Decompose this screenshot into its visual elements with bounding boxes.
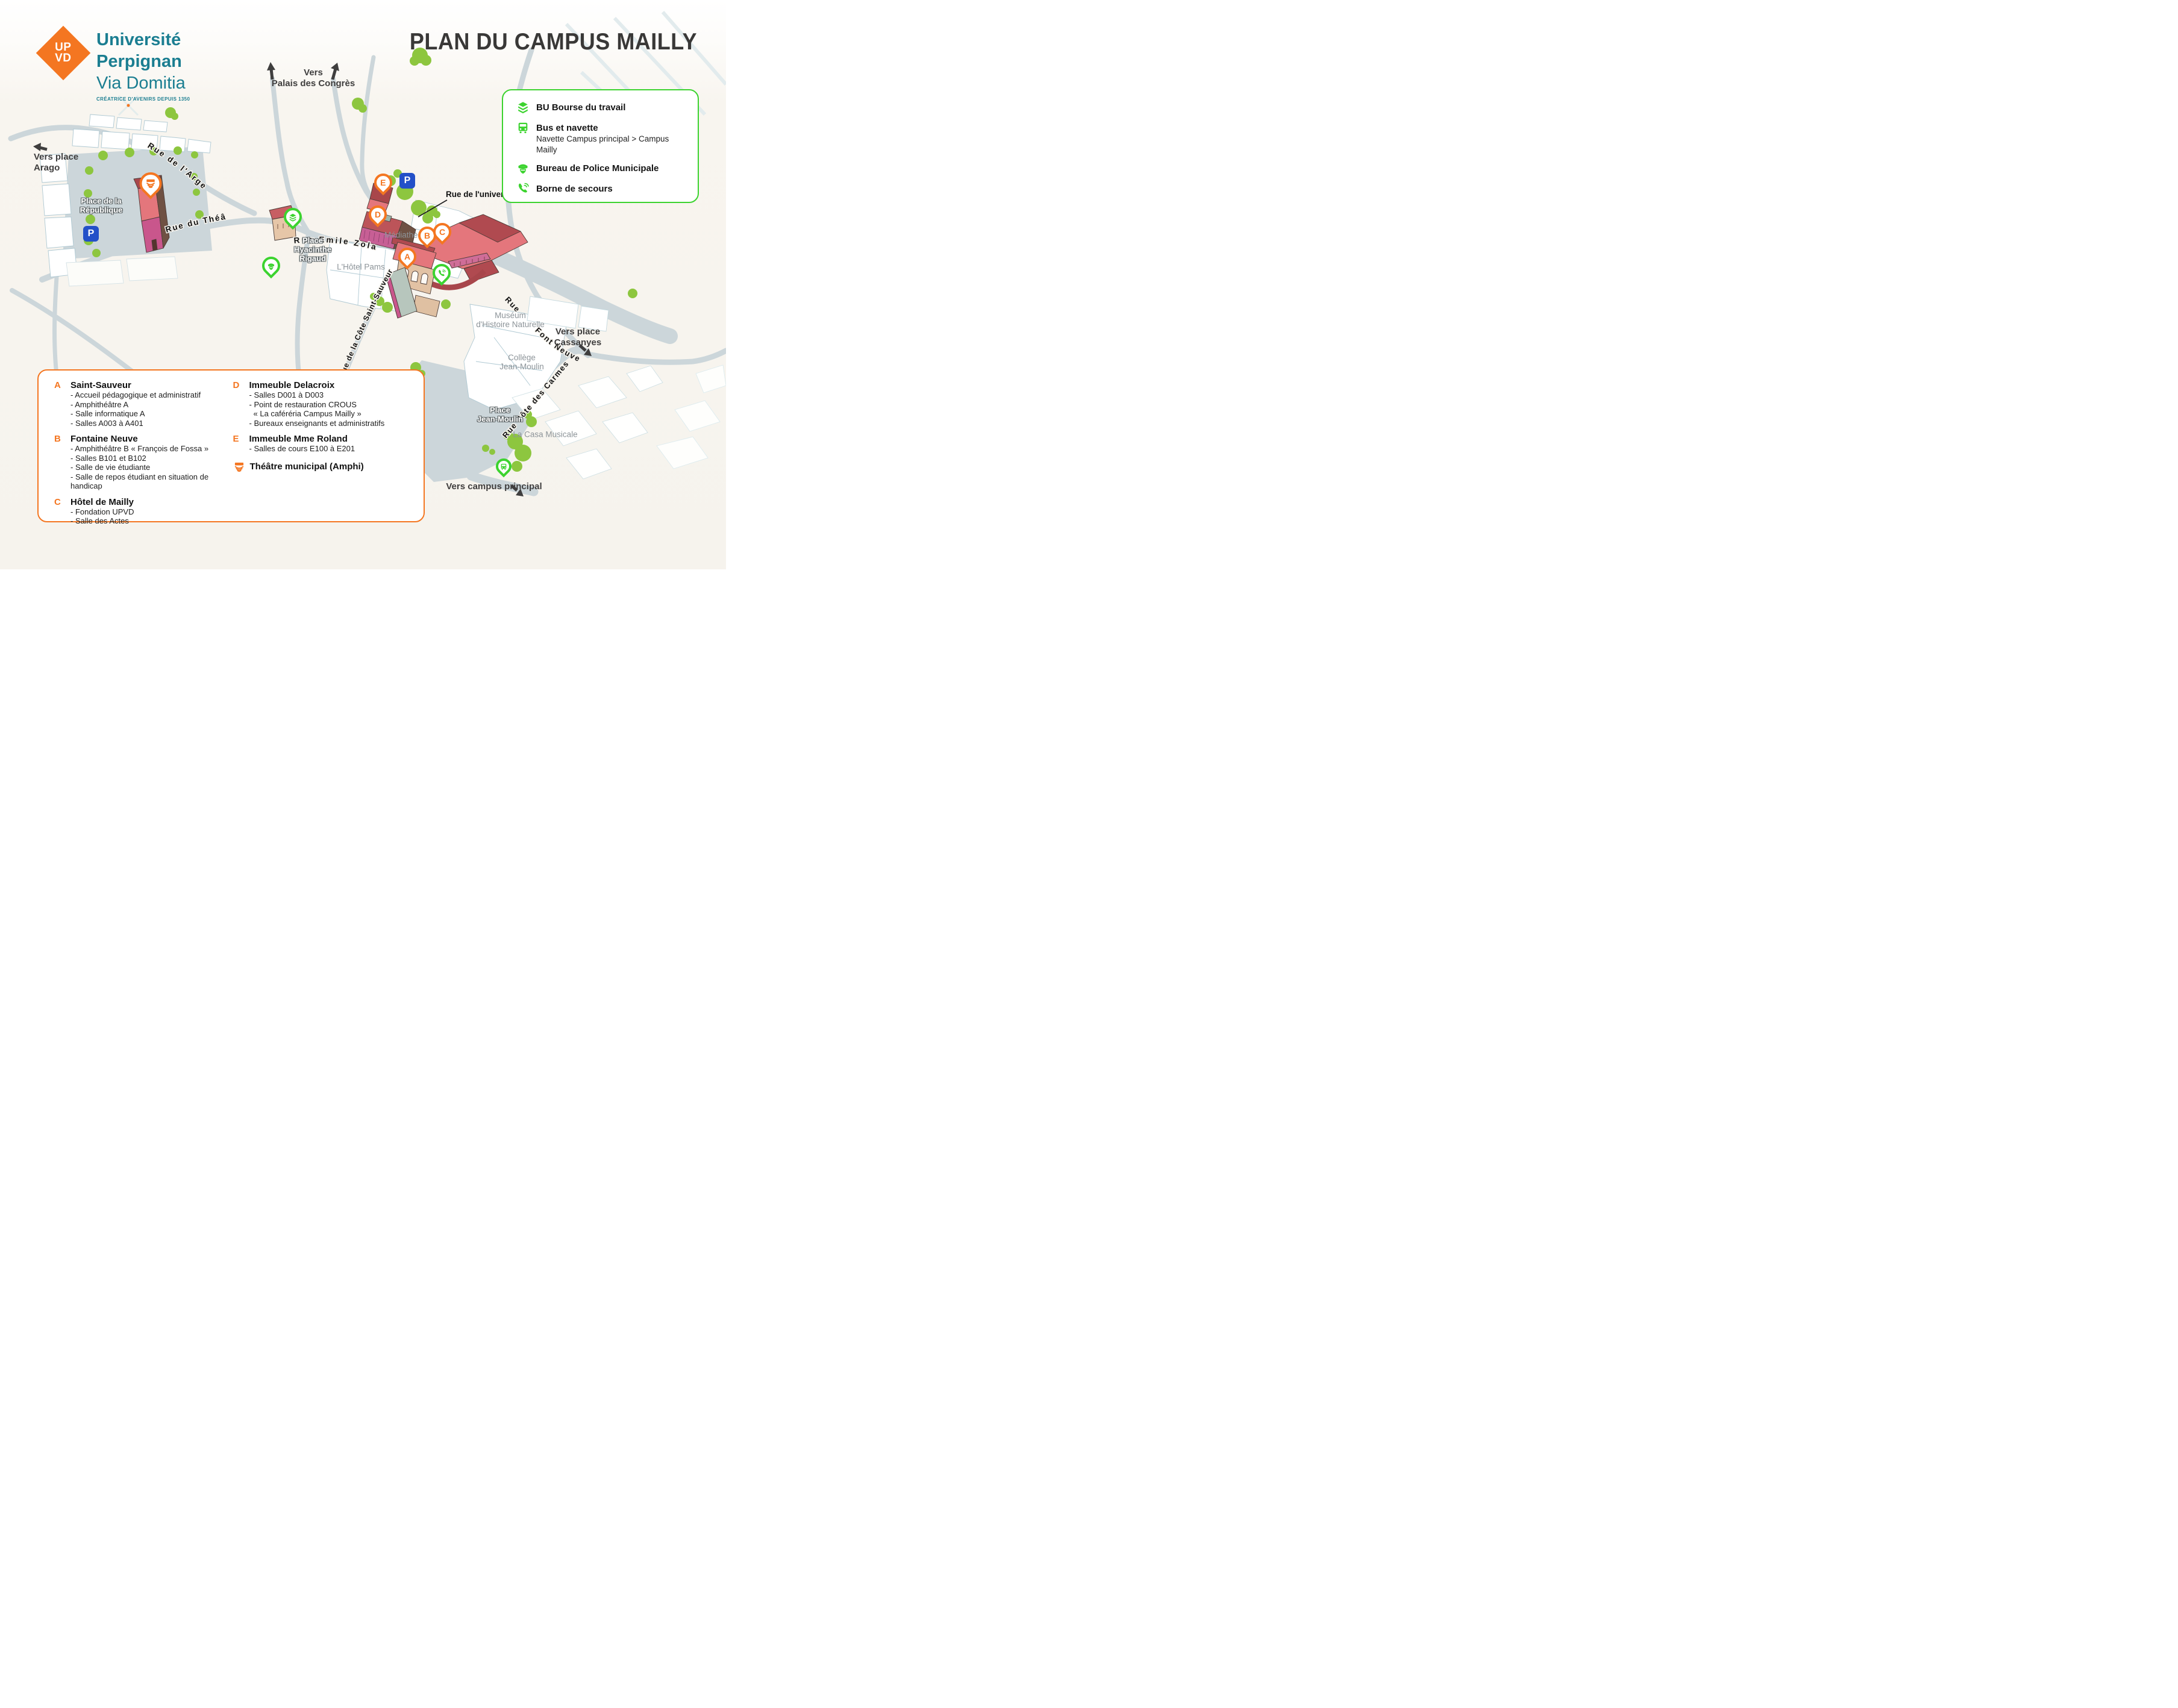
legend-item: - Bureaux enseignants et administratifs [249, 419, 412, 428]
label-college-jean-moulin: Collège Jean-Moulin [499, 353, 544, 371]
theatre-icon [233, 461, 245, 473]
services-legend: BU Bourse du travail Bus et navette Nave… [502, 89, 699, 203]
legend-item: - Salles D001 à D003 [249, 390, 412, 400]
marker-pin-bus-navette[interactable] [496, 458, 512, 474]
marker-pin-bu-library[interactable] [284, 208, 302, 226]
marker-pin-e[interactable]: E [374, 174, 392, 192]
pin-letter-e: E [380, 178, 386, 187]
legend-group-c: C Hôtel de Mailly - Fondation UPVD - Sal… [54, 497, 233, 526]
marker-pin-d[interactable]: D [369, 205, 387, 224]
label-line: Palais des Congrès [272, 78, 355, 89]
label-museum: Muséum d'Histoire Naturelle [476, 311, 545, 329]
label-vers-campus-principal: Vers campus principal [446, 481, 542, 492]
label-line: République [80, 205, 123, 214]
logo-line-universite: Université [96, 29, 190, 51]
pin-head [429, 260, 454, 286]
legend-title-c: Hôtel de Mailly [70, 497, 233, 507]
marker-pin-theatre-municipal[interactable] [140, 172, 162, 195]
logo-tagline: CRÉATRICE D'AVENIRS DEPUIS 1350 [96, 96, 190, 102]
legend-letter-d: D [233, 380, 249, 428]
legend-item-police: Bureau de Police Municipale [516, 163, 689, 175]
label-line: Place [294, 236, 331, 245]
books-icon [516, 101, 530, 114]
label-place-republique: Place de la République [80, 196, 123, 214]
legend-title-b: Fontaine Neuve [70, 434, 233, 444]
pin-head: A [395, 244, 420, 269]
buildings-legend-col-2: D Immeuble Delacroix - Salles D001 à D00… [233, 380, 412, 521]
legend-title-d: Immeuble Delacroix [249, 380, 412, 390]
police-icon [267, 261, 276, 271]
label-line: Cassanyes [554, 337, 601, 348]
pin-letter-a: A [404, 252, 410, 261]
pin-letter-b: B [424, 231, 430, 240]
marker-pin-borne-secours[interactable] [433, 264, 451, 282]
label-vers-palais: Vers Palais des Congrès [272, 67, 355, 89]
legend-letter-b: B [54, 434, 70, 491]
pin-letter-c: C [439, 227, 445, 237]
legend-group-b: B Fontaine Neuve - Amphithéâtre B « Fran… [54, 434, 233, 491]
marker-pin-a[interactable]: A [398, 248, 416, 266]
legend-theatre-row: Théâtre municipal (Amphi) [233, 461, 412, 473]
legend-label-secours: Borne de secours [536, 183, 613, 195]
theatre-icon [145, 178, 157, 189]
pin-letter-d: D [375, 210, 381, 219]
marker-pin-c[interactable]: C [433, 223, 451, 241]
label-vers-cassanyes: Vers place Cassanyes [554, 327, 601, 348]
logo-line-perpignan: Perpignan [96, 51, 190, 72]
legend-sub-bus: Navette Campus principal > Campus Mailly [536, 134, 689, 155]
legend-title-a: Saint-Sauveur [70, 380, 233, 390]
buildings-legend-col-1: A Saint-Sauveur - Accueil pédagogique et… [54, 380, 233, 521]
pin-head [135, 167, 166, 199]
logo-line-via-domitia: Via Domitia [96, 72, 190, 94]
label-line: Muséum [476, 311, 545, 320]
legend-item: - Salle de repos étudiant en situation d… [70, 472, 233, 491]
legend-label-police: Bureau de Police Municipale [536, 163, 659, 174]
legend-item: - Fondation UPVD [70, 507, 233, 517]
bus-icon [516, 121, 530, 134]
buildings-legend: A Saint-Sauveur - Accueil pédagogique et… [37, 369, 425, 522]
label-line: Vers place [34, 152, 78, 163]
legend-item: - Amphithéâtre A [70, 400, 233, 410]
label-line: d'Histoire Naturelle [476, 320, 545, 329]
legend-item: - Salle informatique A [70, 409, 233, 419]
upvd-logo: UP VD Université Perpignan Via Domitia C… [36, 41, 235, 107]
pin-head [258, 253, 284, 278]
books-icon [289, 213, 298, 222]
label-line: Place de la [80, 196, 123, 205]
label-casa-musicale: La Casa Musicale [513, 430, 577, 439]
upvd-logo-acronym: UP VD [55, 42, 71, 64]
label-line: Hyacinthe [294, 245, 331, 254]
label-line: Arago [34, 163, 78, 174]
label-line: Place [477, 405, 523, 414]
legend-letter-c: C [54, 497, 70, 526]
label-line: Rigaud [294, 254, 331, 263]
bus-icon [500, 463, 508, 471]
marker-pin-police[interactable] [262, 257, 280, 275]
legend-item: - Accueil pédagogique et administratif [70, 390, 233, 400]
legend-item: - Salles B101 et B102 [70, 454, 233, 463]
label-hotel-pams: L'Hôtel Pams [337, 263, 385, 272]
label-line: Jean-Moulin [477, 414, 523, 424]
label-place-jean-moulin: Place Jean-Moulin [477, 405, 523, 424]
legend-letter-a: A [54, 380, 70, 428]
pin-head: C [430, 219, 455, 245]
legend-item: - Amphithéâtre B « François de Fossa » [70, 444, 233, 454]
legend-item: - Salles de cours E100 à E201 [249, 444, 412, 454]
legend-item: - Salles A003 à A401 [70, 419, 233, 428]
legend-item: « La caféréria Campus Mailly » [249, 409, 412, 419]
phone-icon [516, 182, 530, 195]
legend-item-bu: BU Bourse du travail [516, 102, 689, 114]
legend-group-d: D Immeuble Delacroix - Salles D001 à D00… [233, 380, 412, 428]
legend-label-bus: Bus et navette [536, 122, 689, 134]
pin-head [493, 455, 515, 478]
label-line: Vers place [554, 327, 601, 337]
label-line: Collège [499, 353, 544, 362]
police-icon [516, 161, 530, 175]
legend-letter-e: E [233, 434, 249, 454]
legend-title-theatre: Théâtre municipal (Amphi) [250, 461, 364, 472]
pin-head: E [371, 170, 396, 195]
label-line: Jean-Moulin [499, 362, 544, 371]
pin-head: D [365, 202, 390, 227]
parking-badge-universite[interactable]: P [399, 173, 415, 189]
label-vers-arago: Vers place Arago [34, 152, 78, 174]
legend-group-a: A Saint-Sauveur - Accueil pédagogique et… [54, 380, 233, 428]
label-place-rigaud: Place Hyacinthe Rigaud [294, 236, 331, 263]
campus-map-page: Rue de l'Argenterie Rue du Théâtre Rue E… [0, 0, 726, 569]
legend-group-e: E Immeuble Mme Roland - Salles de cours … [233, 434, 412, 454]
pin-head [280, 204, 305, 230]
legend-label-bu: BU Bourse du travail [536, 102, 625, 113]
logo-acronym-bottom: VD [55, 53, 71, 64]
label-line: Vers [272, 67, 355, 78]
legend-item-secours: Borne de secours [516, 183, 689, 195]
legend-item-bus: Bus et navette Navette Campus principal … [516, 122, 689, 155]
legend-item: - Salle de vie étudiante [70, 463, 233, 472]
upvd-logo-text: Université Perpignan Via Domitia CRÉATRI… [96, 29, 190, 102]
legend-item: - Salle des Actes [70, 516, 233, 526]
phone-icon [437, 269, 446, 278]
legend-title-e: Immeuble Mme Roland [249, 434, 412, 444]
legend-item: - Point de restauration CROUS [249, 400, 412, 410]
page-title: PLAN DU CAMPUS MAILLY [410, 28, 697, 55]
parking-badge-republique[interactable]: P [83, 226, 99, 242]
